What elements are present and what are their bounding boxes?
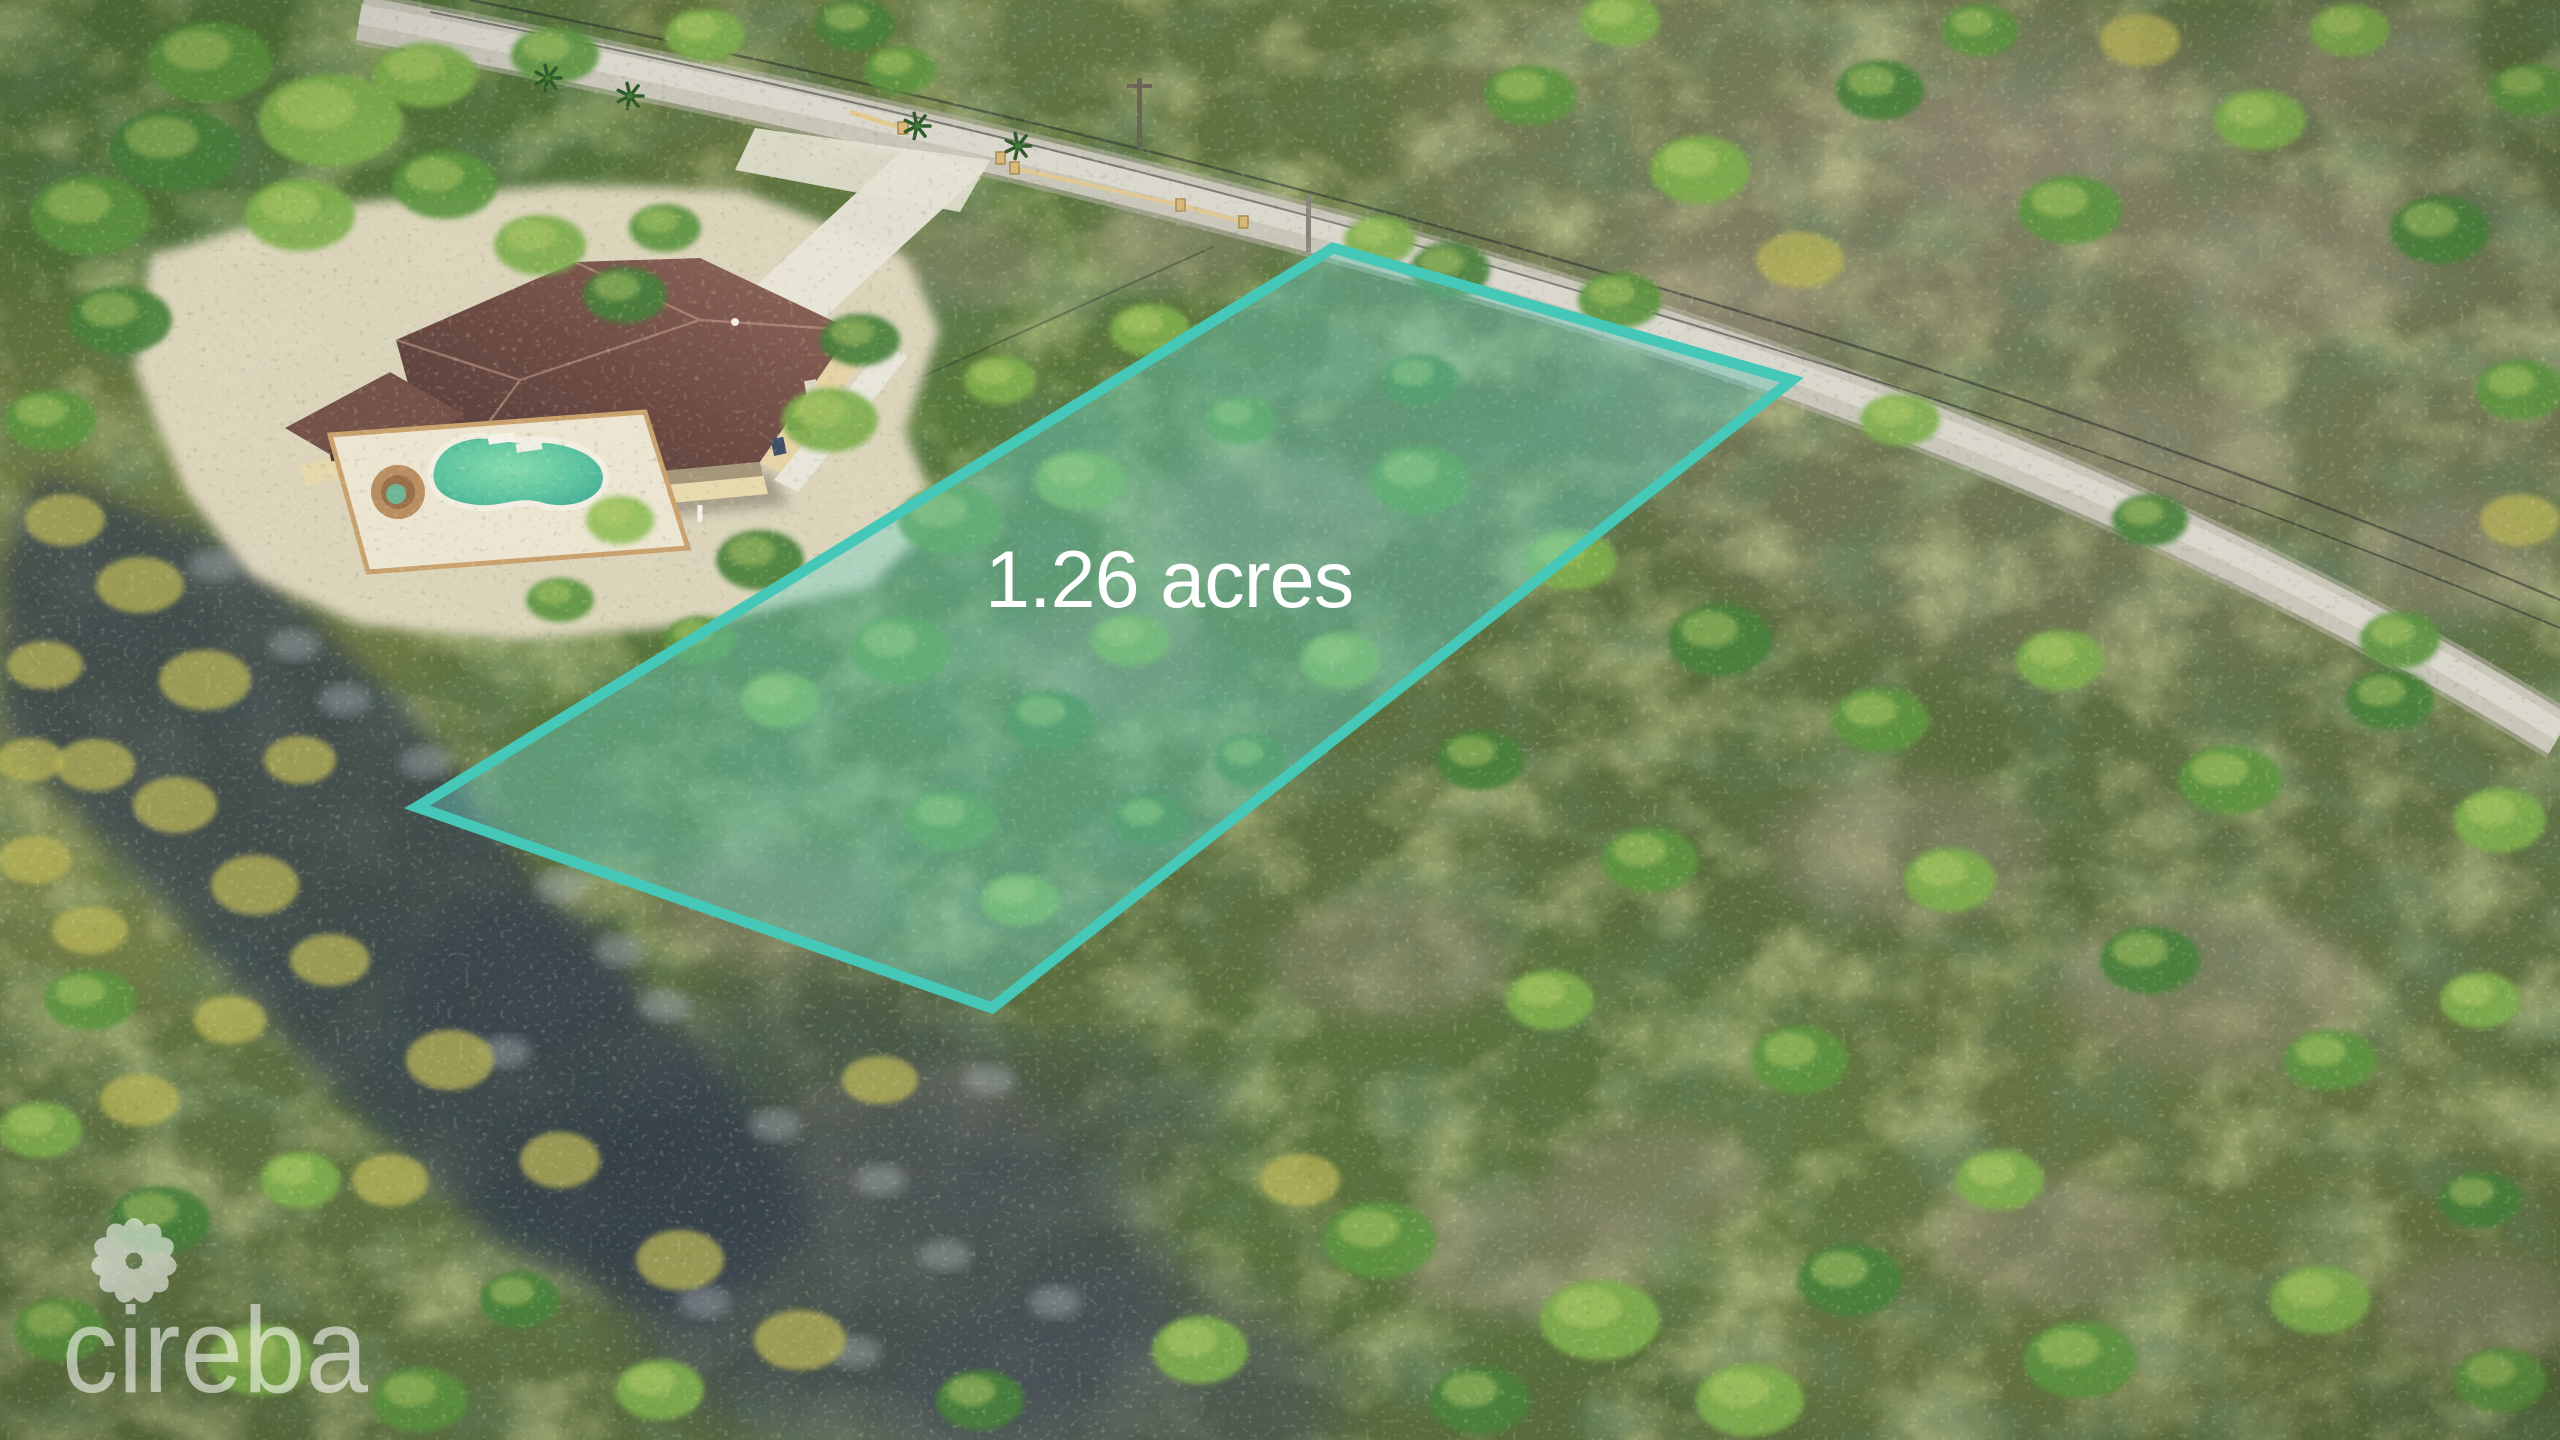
cireba-watermark-text: cireba <box>62 1282 368 1418</box>
aerial-photo: cireba 1.26 acres <box>0 0 2560 1440</box>
aerial-photo-canvas: cireba <box>0 0 2560 1440</box>
acreage-label: 1.26 acres <box>985 540 1353 621</box>
